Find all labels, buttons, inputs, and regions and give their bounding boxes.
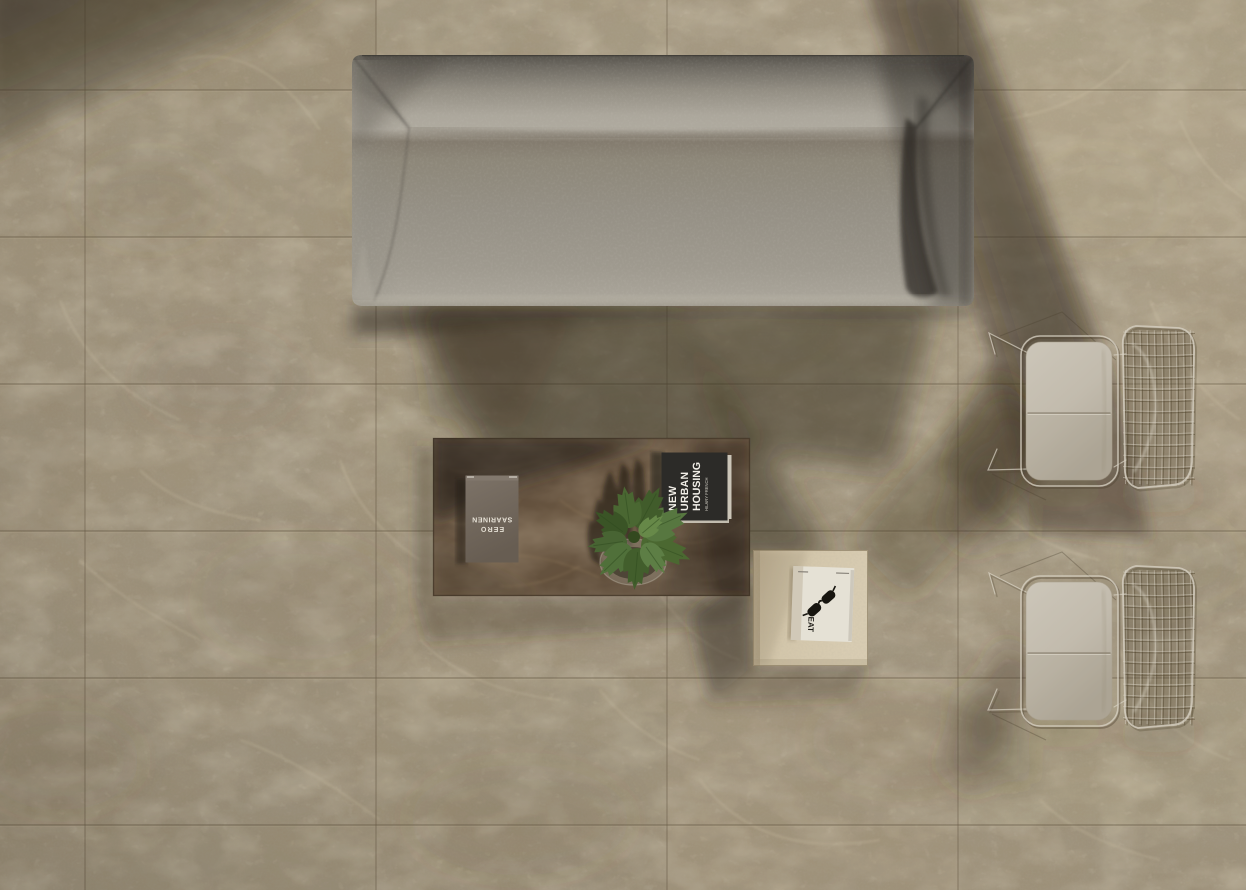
svg-text:NEW: NEW [667, 486, 679, 511]
svg-text:EAT: EAT [806, 616, 816, 632]
svg-text:SAARINEN: SAARINEN [472, 516, 513, 523]
svg-text:HOUSING: HOUSING [691, 462, 703, 511]
svg-text:HILARY FRENCH: HILARY FRENCH [704, 477, 709, 511]
svg-text:EERO: EERO [480, 525, 504, 532]
svg-text:URBAN: URBAN [679, 472, 691, 511]
